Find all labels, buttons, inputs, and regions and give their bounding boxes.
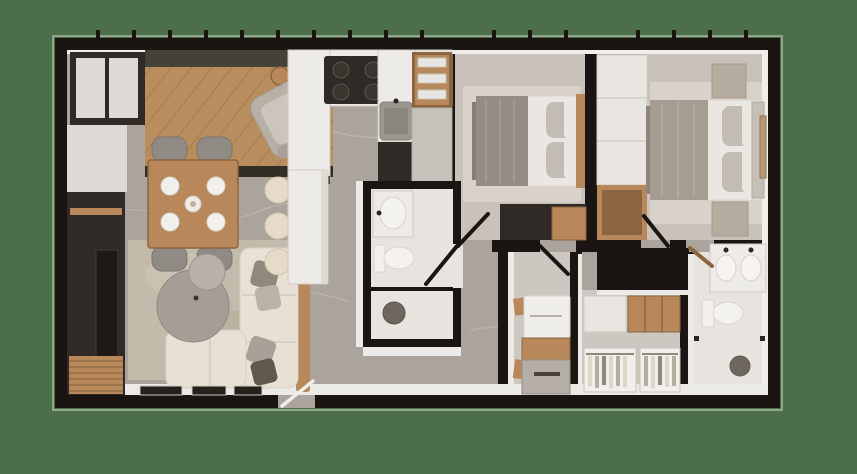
- mullion-tick: [348, 30, 352, 39]
- double-vanity: [710, 244, 766, 292]
- mullion-tick: [420, 30, 424, 39]
- wall-left: [55, 38, 67, 408]
- faucet: [724, 248, 729, 253]
- pillow-white: [564, 100, 576, 138]
- bar-stool: [265, 213, 291, 239]
- wardrobe-door: [109, 58, 138, 118]
- mullion-tick: [384, 30, 388, 39]
- mullion-tick: [312, 30, 316, 39]
- hanging-rack: [640, 348, 680, 392]
- toilet-tank: [702, 300, 714, 327]
- picture-ledge: [140, 386, 262, 395]
- burner: [333, 62, 349, 78]
- dining-chair: [197, 137, 232, 162]
- mullion-tick: [708, 30, 712, 39]
- wall-bottom-right: [315, 395, 780, 408]
- wardrobe-body: [597, 55, 647, 185]
- laundry-cabinet: [522, 338, 570, 360]
- burner: [333, 84, 349, 100]
- dresser-secondary: [500, 204, 586, 240]
- floorplan-svg: [0, 0, 857, 474]
- mullion-tick: [204, 30, 208, 39]
- framed-art: [234, 386, 262, 395]
- mullion-tick: [744, 30, 748, 39]
- framed-art: [140, 386, 182, 395]
- vanity-sink: [716, 255, 736, 281]
- wall-bottom-left: [55, 395, 278, 408]
- vanity: [373, 191, 413, 237]
- wardrobe-door: [76, 58, 105, 118]
- vanity-sink: [380, 197, 406, 229]
- bathroom-ledge: [363, 347, 461, 356]
- toilet-bowl: [713, 302, 743, 324]
- mullion-tick: [96, 30, 100, 39]
- plate: [207, 213, 225, 231]
- side-ottoman: [189, 254, 225, 290]
- wall-face-left: [67, 125, 127, 192]
- wall-between-bedrooms: [585, 50, 597, 252]
- island-shade: [321, 170, 328, 284]
- apartment: [55, 30, 780, 408]
- toilet-tank: [374, 245, 385, 272]
- wall-face-bath: [688, 254, 694, 395]
- wall-laundry-left: [498, 252, 508, 395]
- plate-stack: [418, 58, 446, 67]
- nightstand: [712, 64, 746, 98]
- wall-right: [766, 38, 780, 408]
- slat-bench: [69, 356, 123, 394]
- mullion-tick: [564, 30, 568, 39]
- tv: [96, 250, 118, 360]
- mullion-tick: [168, 30, 172, 39]
- bed-blanket: [650, 100, 708, 200]
- glass-fitting: [694, 336, 699, 341]
- dining-chair: [152, 246, 187, 271]
- counter-left: [288, 50, 330, 180]
- bed-secondary: [472, 94, 585, 188]
- glass-fitting: [760, 336, 765, 341]
- pillow: [254, 284, 282, 312]
- plate-stack: [418, 90, 446, 99]
- dish-shelf: [412, 52, 452, 108]
- island-group: [265, 170, 328, 284]
- floorplan-canvas: [0, 0, 857, 474]
- hanging-rack: [584, 348, 636, 392]
- dresser-wood-box: [552, 207, 586, 240]
- toilet-bowl: [384, 247, 414, 269]
- wall-face-closet-top: [597, 290, 689, 295]
- mullion-tick: [132, 30, 136, 39]
- mullion-tick: [492, 30, 496, 39]
- tall-cabinet: [412, 108, 452, 182]
- nightstand: [712, 202, 748, 236]
- shower-drain: [383, 302, 405, 324]
- mullion-tick: [672, 30, 676, 39]
- bed-master: [646, 100, 764, 200]
- wood-niche-inner: [602, 190, 642, 235]
- plate-stack: [418, 74, 446, 83]
- wall-face-divider: [578, 254, 582, 395]
- ottoman-handle: [194, 296, 199, 301]
- sink-inner: [384, 108, 408, 134]
- wall-face-laundry: [508, 252, 514, 395]
- faucet: [749, 248, 754, 253]
- dining-chair: [152, 137, 187, 162]
- utility-sink-slot: [534, 372, 560, 376]
- bed-blanket: [476, 96, 528, 186]
- shower-drain: [730, 356, 750, 376]
- bar-stool: [265, 249, 291, 275]
- utility-sink: [522, 360, 570, 394]
- entry-console: [145, 50, 288, 67]
- closet-upper-cabinets: [628, 296, 680, 332]
- pillow-white: [564, 140, 576, 178]
- faucet: [377, 211, 382, 216]
- mullion-tick: [528, 30, 532, 39]
- plate: [161, 177, 179, 195]
- bathroom-main: [356, 181, 463, 356]
- centerpiece-detail: [190, 201, 196, 207]
- mullion-tick: [636, 30, 640, 39]
- framed-art: [192, 386, 226, 395]
- lower-cabinet: [378, 142, 416, 182]
- faucet: [394, 99, 399, 104]
- bar-stool: [265, 177, 291, 203]
- bathroom-outer-trim: [356, 181, 363, 347]
- plate: [161, 213, 179, 231]
- kitchen-sink: [380, 99, 412, 141]
- vanity-sink: [741, 255, 761, 281]
- plate: [207, 177, 225, 195]
- wall-art: [760, 116, 766, 178]
- headboard: [576, 94, 585, 188]
- wardrobe-column: [597, 55, 647, 240]
- mullion-tick: [276, 30, 280, 39]
- closet-white-cabinet: [584, 296, 626, 332]
- shelf: [70, 208, 122, 215]
- mullion-tick: [240, 30, 244, 39]
- wall-seg: [492, 240, 540, 252]
- shower-glass-screen: [371, 287, 453, 291]
- wall-mass-closet: [597, 248, 689, 290]
